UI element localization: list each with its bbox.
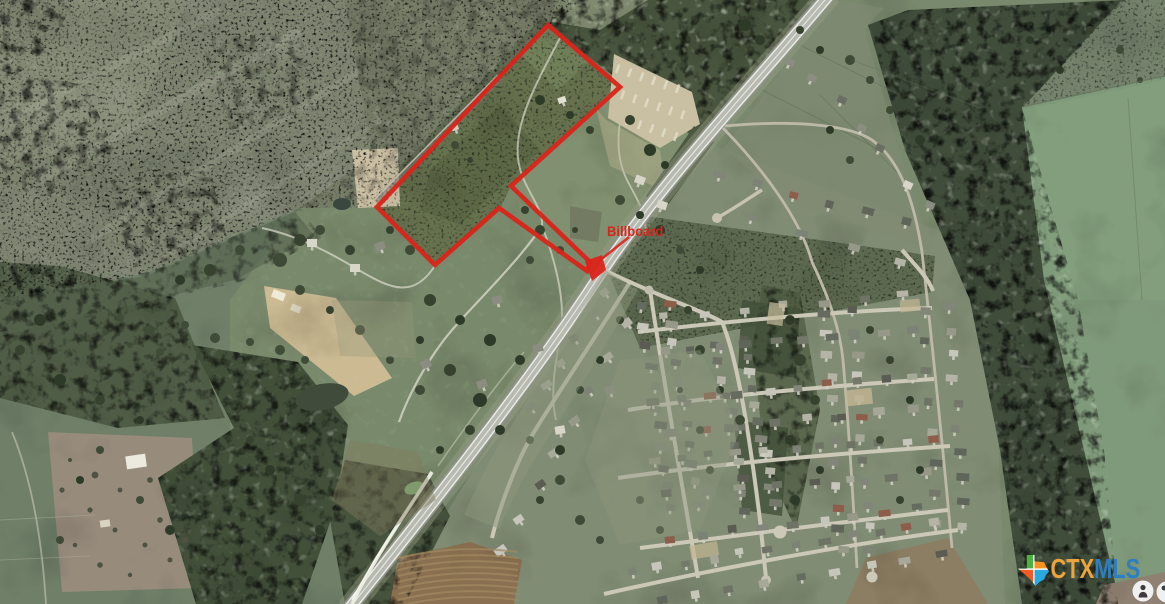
svg-text:Billboard: Billboard bbox=[607, 224, 663, 240]
svg-text:CTXMLS: CTXMLS bbox=[1051, 553, 1141, 584]
